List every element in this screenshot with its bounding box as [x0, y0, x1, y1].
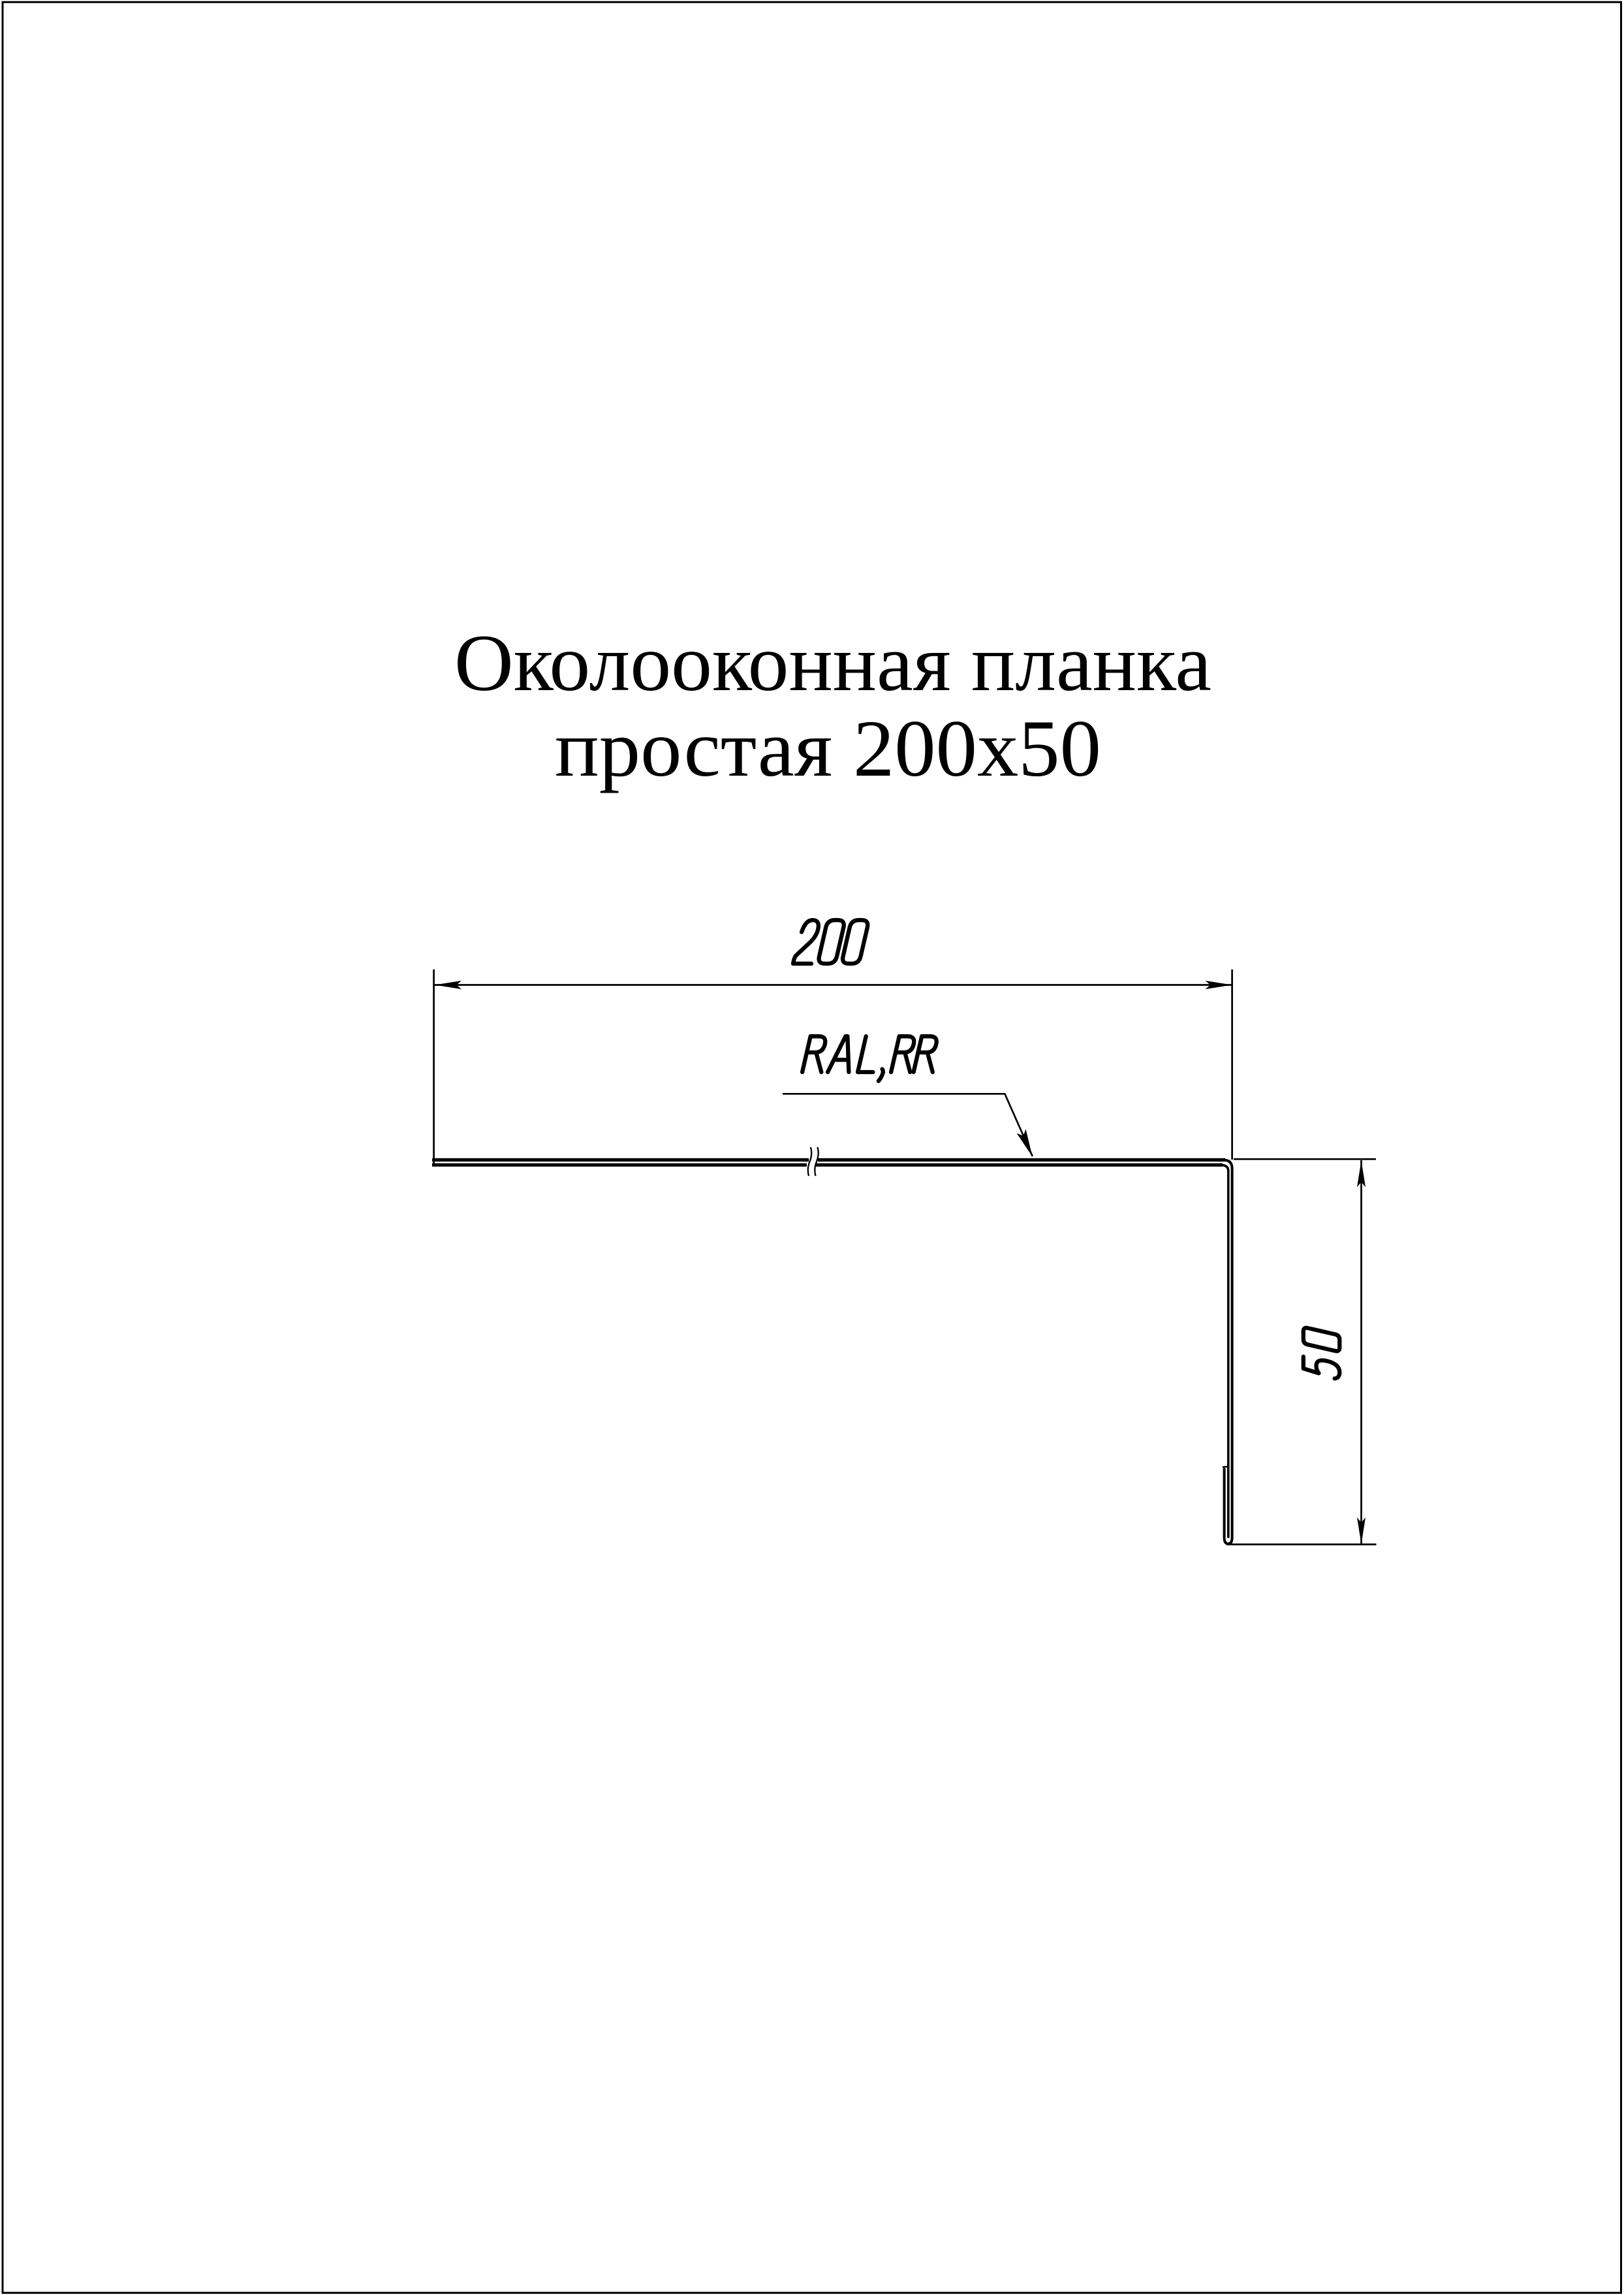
svg-text:Околооконная планка: Околооконная планка — [454, 618, 1211, 708]
svg-text:простая 200х50: простая 200х50 — [555, 704, 1101, 793]
